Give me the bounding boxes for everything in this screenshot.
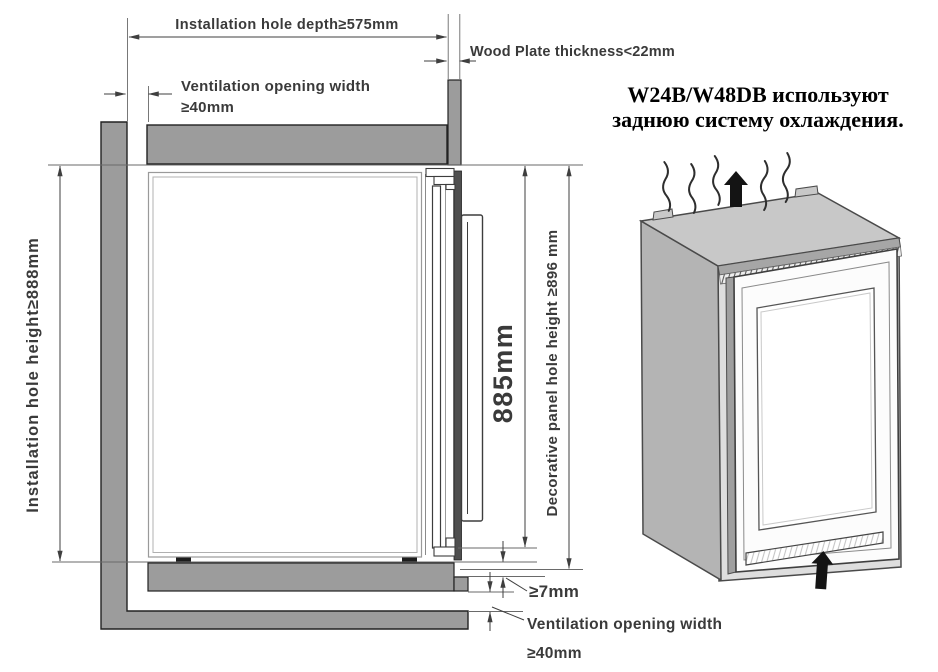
russian-cooling-note: W24B/W48DB используют заднюю систему охл… [578,82,938,132]
wood-plate [448,80,461,165]
label-decor-panel-height: Decorative panel hole height ≥896 mm [544,230,561,517]
appliance-body-outline [149,173,422,558]
label-installation-height: Installation hole height≥888mm [24,237,42,513]
appliance-foot-left [176,558,191,564]
appliance-foot-right [402,558,417,564]
russian-note-line2: заднюю систему охлаждения. [578,107,938,132]
russian-note-line1: W24B/W48DB используют [578,82,938,107]
airflow-out-top-arrow-icon [724,171,748,207]
plinth-platform [148,563,454,591]
installation-diagram-page: Installation hole depth≥575mm Wood Plate… [0,0,938,672]
plinth-step [454,577,468,591]
label-door-height: 885mm [488,323,518,424]
door-handle [462,215,483,521]
label-vent-top-2: ≥40mm [181,99,234,116]
label-installation-depth: Installation hole depth≥575mm [175,17,398,33]
label-vent-top-1: Ventilation opening width [181,78,370,95]
door-recessed-panel [757,288,876,530]
label-bottom-clearance: ≥7mm [529,582,579,601]
label-vent-bottom-1: Ventilation opening width [527,616,722,633]
left-face [641,221,721,580]
label-wood-plate-thickness: Wood Plate thickness<22mm [470,44,675,60]
decorative-panel [454,171,462,560]
door-mount-strip [446,174,454,556]
cabinet-top-panel [147,125,447,164]
label-vent-bottom-2: ≥40mm [527,645,582,662]
appliance-3d-view [641,153,902,590]
door-slab [433,186,441,548]
